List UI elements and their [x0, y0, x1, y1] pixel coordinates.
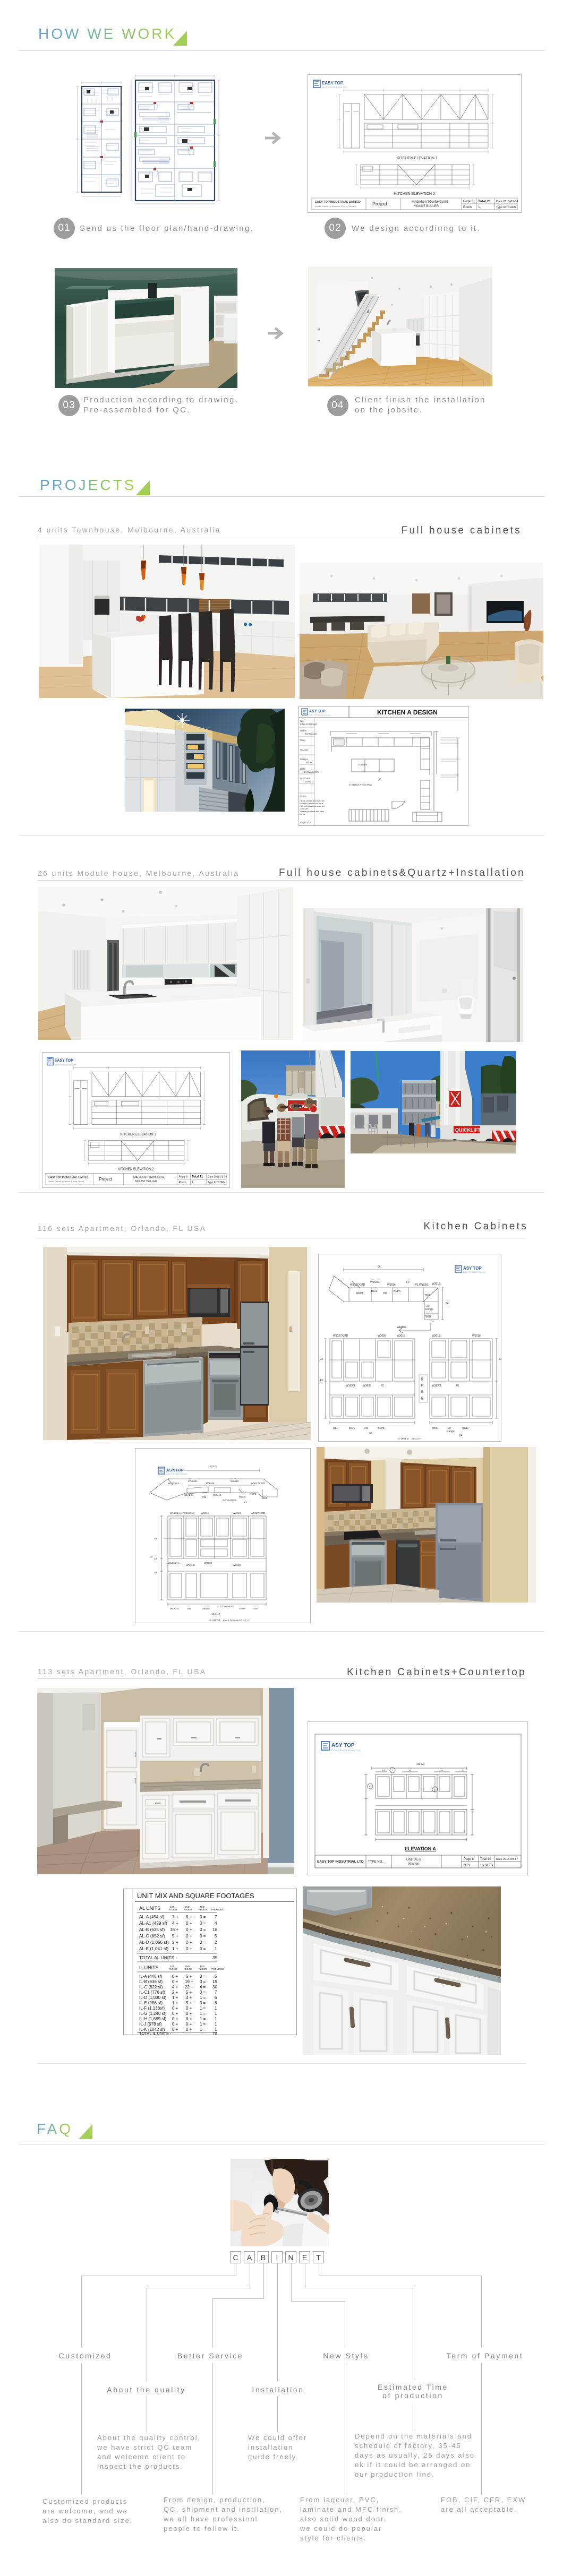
svg-text:124 1/2: 124 1/2: [208, 1465, 217, 1468]
svg-text:EASY TOP INDUSTRIAL LTD.: EASY TOP INDUSTRIAL LTD.: [463, 1271, 486, 1273]
svg-text:复: 复: [421, 1377, 424, 1381]
svg-text:1 =: 1 =: [200, 2017, 206, 2021]
svg-text:1 =: 1 =: [200, 2006, 206, 2011]
svg-text:ELEVATION A: ELEVATION A: [405, 1846, 436, 1851]
svg-text:0 +: 0 +: [186, 2017, 192, 2021]
svg-text:AL-B (635 sf): AL-B (635 sf): [139, 1927, 165, 1932]
svg-text:REP1: REP1: [250, 1493, 257, 1496]
svg-text:4: 4: [215, 1921, 217, 1926]
svg-text:Page 3: Page 3: [463, 200, 474, 203]
svg-text:REF.: REF.: [253, 1607, 258, 1610]
svg-text:F2: F2: [406, 1281, 410, 1284]
svg-text:16: 16: [212, 1927, 218, 1932]
svg-text:0 +: 0 +: [186, 1915, 192, 1919]
svg-text:BEA24L: BEA24L: [184, 1494, 193, 1497]
svg-text:TB9R: TB9R: [239, 1607, 246, 1610]
svg-text:FLOOR: FLOOR: [184, 1968, 192, 1970]
svg-text:124 1/2: 124 1/2: [211, 1613, 220, 1616]
svg-text:5 +: 5 +: [186, 1990, 192, 1995]
svg-text:IL-C1 (776 sf): IL-C1 (776 sf): [139, 1990, 165, 1995]
svg-text:16mmMFC/Hback door fronts: 16mmMFC/Hback door fronts: [300, 803, 323, 805]
svg-text:0 +: 0 +: [172, 2017, 178, 2021]
svg-text:W1836L: W1836L: [432, 1384, 442, 1388]
svg-text:ETG-1307C HK: ETG-1307C HK: [300, 723, 317, 726]
svg-text:30: 30: [212, 1985, 217, 1989]
svg-text:MAGANNI TOWNHOUSE: MAGANNI TOWNHOUSE: [412, 201, 448, 204]
svg-text:2 +: 2 +: [172, 1990, 178, 1995]
svg-text:5 +: 5 +: [172, 1934, 178, 1939]
svg-text:4 =: 4 =: [200, 1985, 206, 1989]
svg-text:20" RANGE: 20" RANGE: [223, 1499, 236, 1502]
svg-text:102 7/8: 102 7/8: [416, 1763, 425, 1765]
svg-text:AL-A (454 sf): AL-A (454 sf): [139, 1915, 165, 1919]
svg-text:7: 7: [215, 1915, 217, 1919]
svg-text:F1: F1: [431, 1320, 434, 1323]
svg-text:IL-G (1,240 sf): IL-G (1,240 sf): [139, 2011, 167, 2016]
svg-text:Total 21: Total 21: [478, 200, 491, 203]
svg-text:Page 8: Page 8: [464, 1858, 474, 1861]
svg-text:TOTAL AL UNITS -: TOTAL AL UNITS -: [139, 1955, 177, 1960]
svg-text:F1: F1: [244, 1501, 248, 1504]
svg-text:1,: 1,: [478, 205, 481, 209]
svg-text:36: 36: [154, 1537, 157, 1540]
svg-text:TOTAL IL UNITS -: TOTAL IL UNITS -: [139, 2031, 172, 2035]
svg-text:4 +: 4 +: [172, 1921, 178, 1926]
svg-text:1 =: 1 =: [200, 2022, 206, 2027]
svg-text:35: 35: [212, 1955, 218, 1960]
svg-text:36: 36: [408, 1769, 412, 1772]
svg-text:0 +: 0 +: [186, 1940, 192, 1945]
svg-text:36: 36: [320, 1358, 323, 1361]
svg-text:0 +: 0 +: [186, 2027, 192, 2032]
svg-text:ASY TOP: ASY TOP: [331, 1743, 355, 1748]
svg-text:AL-D (1,056 sf): AL-D (1,056 sf): [139, 1940, 169, 1945]
svg-text:90: 90: [150, 1555, 153, 1558]
svg-text:30: 30: [382, 1769, 385, 1772]
svg-text:EASY TOP INDUSTRIAL LTD: EASY TOP INDUSTRIAL LTD: [309, 714, 330, 716]
svg-text:0 +: 0 +: [172, 1974, 178, 1979]
svg-text:1 =: 1 =: [200, 2027, 206, 2032]
svg-text:1: 1: [215, 2011, 217, 2016]
svg-text:ASY TOP: ASY TOP: [463, 1266, 482, 1271]
svg-text:AL UNITS: AL UNITS: [139, 1906, 160, 1911]
svg-text:AL-A1 (429 sf): AL-A1 (429 sf): [139, 1921, 167, 1926]
svg-text:Page 1/17: Page 1/17: [300, 821, 311, 824]
svg-text:QTY: QTY: [464, 1864, 470, 1867]
svg-text:WEP36: WEP36: [397, 1326, 406, 1329]
svg-text:5: 5: [215, 1934, 217, 1939]
svg-text:码: 码: [421, 1390, 424, 1394]
svg-text:W3018: W3018: [472, 1334, 481, 1338]
svg-text:Type KITCHEN: Type KITCHEN: [496, 206, 516, 209]
svg-text:1 +: 1 +: [172, 1946, 178, 1951]
svg-text:MOUNT BULLER: MOUNT BULLER: [414, 205, 439, 208]
svg-text:0 +: 0 +: [186, 2011, 192, 2016]
svg-text:Notes:: Notes:: [300, 795, 307, 798]
svg-text:36: 36: [440, 1769, 443, 1772]
svg-text:DB415: DB415: [202, 1607, 210, 1610]
svg-text:Kitchen Cabinets & Wardrobe &: Kitchen Cabinets & Wardrobe & Vanity Cab…: [315, 205, 356, 208]
svg-text:EASY TOP INDUSTRIAL LTD: EASY TOP INDUSTRIAL LTD: [331, 1749, 360, 1752]
svg-text:0 =: 0 =: [200, 1915, 206, 1919]
svg-text:W3636: W3636: [387, 1283, 396, 1287]
svg-text:Design:: Design:: [300, 758, 308, 761]
svg-text:FLOOR: FLOOR: [169, 1968, 177, 1970]
svg-text:96: 96: [378, 1265, 381, 1269]
svg-text:REF: REF: [333, 1427, 338, 1430]
svg-text:1 +: 1 +: [172, 1995, 178, 2000]
svg-text:2 +: 2 +: [172, 1940, 178, 1945]
svg-text:2: 2: [215, 1940, 217, 1945]
svg-text:7 +: 7 +: [172, 1915, 178, 1919]
svg-text:5 +: 5 +: [186, 1974, 192, 1979]
svg-text:DW: DW: [364, 1427, 369, 1430]
svg-text:W3027X24D: W3027X24D: [251, 1512, 266, 1515]
svg-text:0 +: 0 +: [186, 2022, 192, 2027]
svg-text:FLOOR: FLOOR: [199, 1908, 207, 1911]
svg-text:14 March 2011: 14 March 2011: [304, 771, 320, 773]
svg-text:Date:: Date:: [300, 768, 306, 770]
svg-text:Date 2018-03-04: Date 2018-03-04: [496, 200, 518, 203]
svg-text:0 =: 0 =: [200, 2001, 206, 2005]
svg-text:BEP5: BEP5: [394, 1290, 400, 1293]
svg-text:IL-C (822 sf): IL-C (822 sf): [139, 1985, 163, 1989]
svg-text:0 +: 0 +: [172, 2022, 178, 2027]
svg-text:FLOOR: FLOOR: [169, 1908, 177, 1911]
svg-text:2.All wall cabinets laminate a: 2.All wall cabinets laminate and: [300, 805, 325, 807]
svg-text:1: 1: [215, 2006, 217, 2011]
svg-text:IL-D (1,030 sf): IL-D (1,030 sf): [139, 1995, 166, 2000]
svg-text:① Kitchen A Floor Plan: ① Kitchen A Floor Plan: [349, 783, 372, 786]
svg-text:AL-C (852 sf): AL-C (852 sf): [139, 1934, 165, 1939]
svg-text:4 +: 4 +: [186, 1995, 192, 2000]
svg-text:UNIT MIX AND SQUARE FOOTAGES: UNIT MIX AND SQUARE FOOTAGES: [137, 1892, 254, 1900]
svg-text:B12L: B12L: [349, 1427, 355, 1430]
svg-text:96: 96: [369, 1432, 372, 1435]
svg-text:Townhouse: Townhouse: [305, 733, 317, 735]
svg-text:0 =: 0 =: [200, 1927, 206, 1932]
svg-text:BEA24L: BEA24L: [170, 1607, 180, 1610]
svg-text:signed.: signed.: [300, 813, 305, 815]
svg-text:0 +: 0 +: [186, 1921, 192, 1926]
svg-text:TB9R: TB9R: [239, 1496, 246, 1499]
svg-text:IL-E (986 sf): IL-E (986 sf): [139, 2001, 163, 2005]
svg-text:1: 1: [215, 1946, 217, 1951]
svg-text:ASY TOP: ASY TOP: [166, 1468, 184, 1472]
svg-text:EASY TOP INDUSTRIAL LTD.: EASY TOP INDUSTRIAL LTD.: [166, 1473, 188, 1475]
svg-text:19 +: 19 +: [185, 1979, 193, 1984]
svg-text:0 +: 0 +: [186, 1934, 192, 1939]
svg-text:W3636: W3636: [363, 1384, 371, 1388]
svg-text:W3018: W3018: [233, 1564, 241, 1567]
svg-text:16 SETS: 16 SETS: [480, 1864, 493, 1867]
svg-text:W3636: W3636: [204, 1562, 212, 1565]
svg-text:3.Drawing available after clie: 3.Drawing available after client: [300, 811, 324, 813]
svg-text:IL-J (978 sf): IL-J (978 sf): [139, 2022, 162, 2027]
svg-text:TB9R: TB9R: [462, 1427, 468, 1430]
svg-text:0 +: 0 +: [186, 1946, 192, 1951]
svg-text:W3636: W3636: [206, 1482, 215, 1485]
svg-text:SCALE:: SCALE:: [300, 748, 309, 751]
svg-text:64: 64: [446, 1302, 449, 1305]
svg-text:Range: Range: [447, 1430, 455, 1433]
svg-text:B12L: B12L: [371, 1290, 378, 1293]
svg-text:IL-B (636 sf): IL-B (636 sf): [139, 1979, 163, 1984]
svg-text:W3018: W3018: [397, 1334, 405, 1338]
svg-text:0 +: 0 +: [172, 2027, 178, 2032]
svg-text:5: 5: [215, 1974, 217, 1979]
svg-text:No.:: No.:: [300, 720, 304, 722]
svg-text:TB9L: TB9L: [424, 1294, 431, 1297]
svg-text:W1536L: W1536L: [346, 1384, 356, 1388]
svg-text:F2: F2: [320, 1379, 323, 1382]
svg-text:1 +: 1 +: [172, 2001, 178, 2005]
svg-text:0 =: 0 =: [200, 1946, 206, 1951]
svg-text:64: 64: [459, 1434, 463, 1437]
svg-text:PROVIDED: PROVIDED: [211, 1968, 224, 1970]
svg-text:REP1: REP1: [356, 1292, 363, 1295]
svg-text:DW: DW: [202, 1496, 206, 1499]
svg-text:QUICKLIFT: QUICKLIFT: [455, 1127, 481, 1133]
svg-text:W3027X24D: W3027X24D: [350, 1283, 365, 1287]
svg-text:1 =: 1 =: [200, 2011, 206, 2016]
svg-text:F1: F1: [456, 1384, 459, 1388]
svg-text:David L: David L: [305, 780, 313, 783]
svg-text:16 +: 16 +: [170, 1927, 178, 1932]
svg-text:ASY TOP: ASY TOP: [309, 710, 326, 713]
svg-text:Name:: Name:: [300, 729, 307, 732]
svg-text:Kitchen: Kitchen: [408, 1863, 419, 1866]
svg-text:TB9R: TB9R: [424, 1315, 431, 1319]
svg-text:4 +: 4 +: [172, 1985, 178, 1989]
svg-text:W1536L: W1536L: [188, 1480, 198, 1483]
svg-text:Approved:: Approved:: [300, 777, 311, 780]
svg-text:0 +: 0 +: [186, 1927, 192, 1932]
svg-text:1 =: 1 =: [200, 1995, 206, 2000]
svg-text:DW: DW: [383, 1292, 388, 1295]
svg-text:CORNER: CORNER: [358, 763, 367, 766]
svg-text:W3636: W3636: [201, 1512, 209, 1515]
svg-text:IL UNITS: IL UNITS: [139, 1965, 159, 1970]
svg-text:6: 6: [215, 2001, 217, 2005]
svg-text:TB0L: TB0L: [432, 1427, 438, 1430]
svg-text:0 =: 0 =: [200, 1940, 206, 1945]
svg-text:REF: REF: [262, 1497, 268, 1500]
svg-text:IL-A (446 sf): IL-A (446 sf): [139, 1974, 163, 1979]
svg-text:AL-E (1,041 sf): AL-E (1,041 sf): [139, 1946, 168, 1951]
svg-text:20" RANGE: 20" RANGE: [220, 1605, 233, 1608]
svg-text:W3027X24D: W3027X24D: [251, 1482, 266, 1485]
svg-text:KITCHEN ELEVATION 1: KITCHEN ELEVATION 1: [397, 157, 438, 160]
svg-text:TYPE NO.:: TYPE NO.:: [368, 1860, 384, 1864]
svg-text:0 +: 0 +: [172, 2006, 178, 2011]
svg-text:0 +: 0 +: [186, 2006, 192, 2011]
svg-text:Ⓥ UNIT B: Ⓥ UNIT B: [209, 1618, 220, 1622]
svg-text:5 +: 5 +: [186, 2001, 192, 2005]
svg-text:W3018: W3018: [432, 1282, 440, 1286]
svg-text:18: 18: [154, 1557, 157, 1561]
svg-text:Date 2016-09-17: Date 2016-09-17: [496, 1858, 518, 1861]
svg-text:DW: DW: [187, 1607, 191, 1610]
svg-text:FLOOR: FLOOR: [184, 1908, 192, 1911]
svg-text:16mm MFC.: 16mm MFC.: [300, 808, 310, 810]
svg-text:EASY TOP INDSUTRIAL LTD: EASY TOP INDSUTRIAL LTD: [317, 1860, 364, 1864]
svg-text:UNIT AL-B: UNIT AL-B: [406, 1858, 422, 1862]
svg-text:Elev & FP Scale 1/2" = 1'-0": Elev & FP Scale 1/2" = 1'-0": [223, 1619, 250, 1622]
svg-text:W1236A-L: W1236A-L: [168, 1562, 180, 1565]
svg-text:1: 1: [215, 2022, 217, 2027]
svg-text:W1536L: W1536L: [186, 1564, 195, 1567]
svg-text:30: 30: [462, 1769, 465, 1772]
svg-text:0 =: 0 =: [200, 1974, 206, 1979]
svg-text:IL-F (1,138sf): IL-F (1,138sf): [139, 2006, 165, 2011]
svg-text:ML Ye: ML Ye: [306, 761, 313, 764]
svg-text:0 =: 0 =: [200, 1921, 206, 1926]
svg-text:W3636: W3636: [378, 1334, 386, 1338]
svg-text:W3018: W3018: [432, 1334, 440, 1338]
svg-text:EASY TOP INDUSTRIAL LTD: EASY TOP INDUSTRIAL LTD: [322, 87, 347, 89]
svg-text:W1236A-L (W1536L): W1236A-L (W1536L): [170, 1512, 194, 1515]
svg-text:Ⓥ UNIT B: Ⓥ UNIT B: [398, 1437, 408, 1441]
svg-text:36: 36: [154, 1571, 157, 1574]
svg-text:PROVIDED: PROVIDED: [211, 1908, 224, 1911]
svg-text:KITCHEN A DESIGN: KITCHEN A DESIGN: [377, 709, 438, 716]
svg-text:0 =: 0 =: [200, 1979, 206, 1984]
svg-text:64: 64: [499, 1358, 501, 1360]
svg-text:KITCHEN ELEVATION 2: KITCHEN ELEVATION 2: [394, 192, 435, 196]
svg-text:BEP5: BEP5: [378, 1427, 385, 1430]
svg-text:W1236A-L: W1236A-L: [168, 1482, 180, 1485]
svg-text:1.Base cabinets and pantry are: 1.Base cabinets and pantry are: [300, 800, 325, 802]
svg-text:W1836L: W1836L: [419, 1283, 429, 1287]
svg-text:制: 制: [421, 1383, 424, 1388]
svg-text:EASY TOP: EASY TOP: [322, 81, 344, 85]
svg-text:F1: F1: [415, 1283, 419, 1287]
svg-text:EASY TOP INDUSTRIAL LIMITED: EASY TOP INDUSTRIAL LIMITED: [315, 201, 361, 204]
svg-text:0 =: 0 =: [200, 1934, 206, 1939]
svg-text:78: 78: [212, 2031, 217, 2035]
svg-text:W3018: W3018: [231, 1480, 239, 1483]
svg-text:Range: Range: [425, 1308, 433, 1311]
svg-text:W3018: W3018: [233, 1512, 241, 1515]
svg-text:Room: Room: [463, 206, 472, 209]
svg-text:Total 92: Total 92: [480, 1858, 492, 1861]
svg-text:Elev & FP: Elev & FP: [412, 1437, 421, 1440]
svg-text:0 +: 0 +: [172, 1979, 178, 1984]
svg-text:1: 1: [215, 2017, 217, 2021]
svg-text:0 +: 0 +: [172, 2011, 178, 2016]
svg-text:W3027X24D: W3027X24D: [333, 1334, 348, 1338]
svg-text:7: 7: [215, 1990, 217, 1995]
svg-text:Size:: Size:: [300, 739, 305, 742]
svg-text:22 +: 22 +: [185, 1985, 193, 1989]
svg-text:W1536L: W1536L: [370, 1281, 380, 1284]
svg-text:Project: Project: [372, 201, 388, 206]
svg-text:FLOOR: FLOOR: [199, 1968, 207, 1970]
svg-text:F2: F2: [381, 1384, 384, 1388]
svg-text:DB415: DB415: [214, 1494, 221, 1497]
svg-text:6: 6: [215, 1995, 217, 2000]
svg-text:19: 19: [212, 1979, 217, 1984]
svg-text:0 =: 0 =: [200, 1990, 206, 1995]
svg-text:存: 存: [421, 1396, 424, 1400]
svg-text:IL-H (1,689 sf): IL-H (1,689 sf): [139, 2017, 166, 2021]
